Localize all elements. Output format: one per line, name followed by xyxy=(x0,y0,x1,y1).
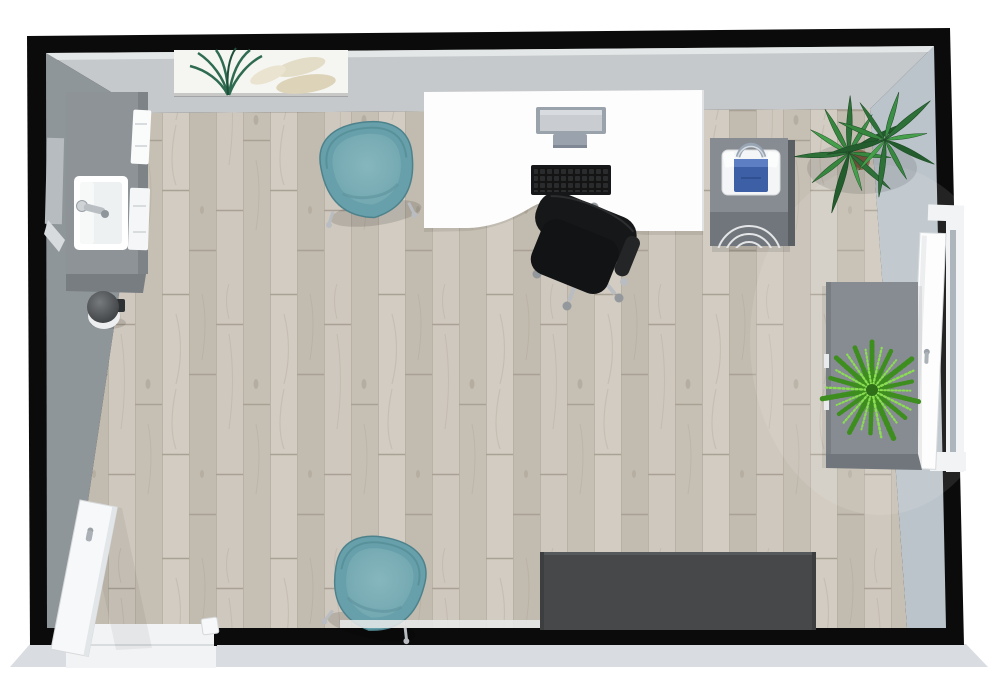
tote-bag[interactable] xyxy=(722,145,780,195)
wall-art[interactable] xyxy=(174,48,348,97)
baseboard-trim xyxy=(340,620,540,628)
bench-seat[interactable] xyxy=(540,552,816,630)
keyboard[interactable] xyxy=(531,165,611,195)
floorplan-canvas xyxy=(0,0,1000,681)
